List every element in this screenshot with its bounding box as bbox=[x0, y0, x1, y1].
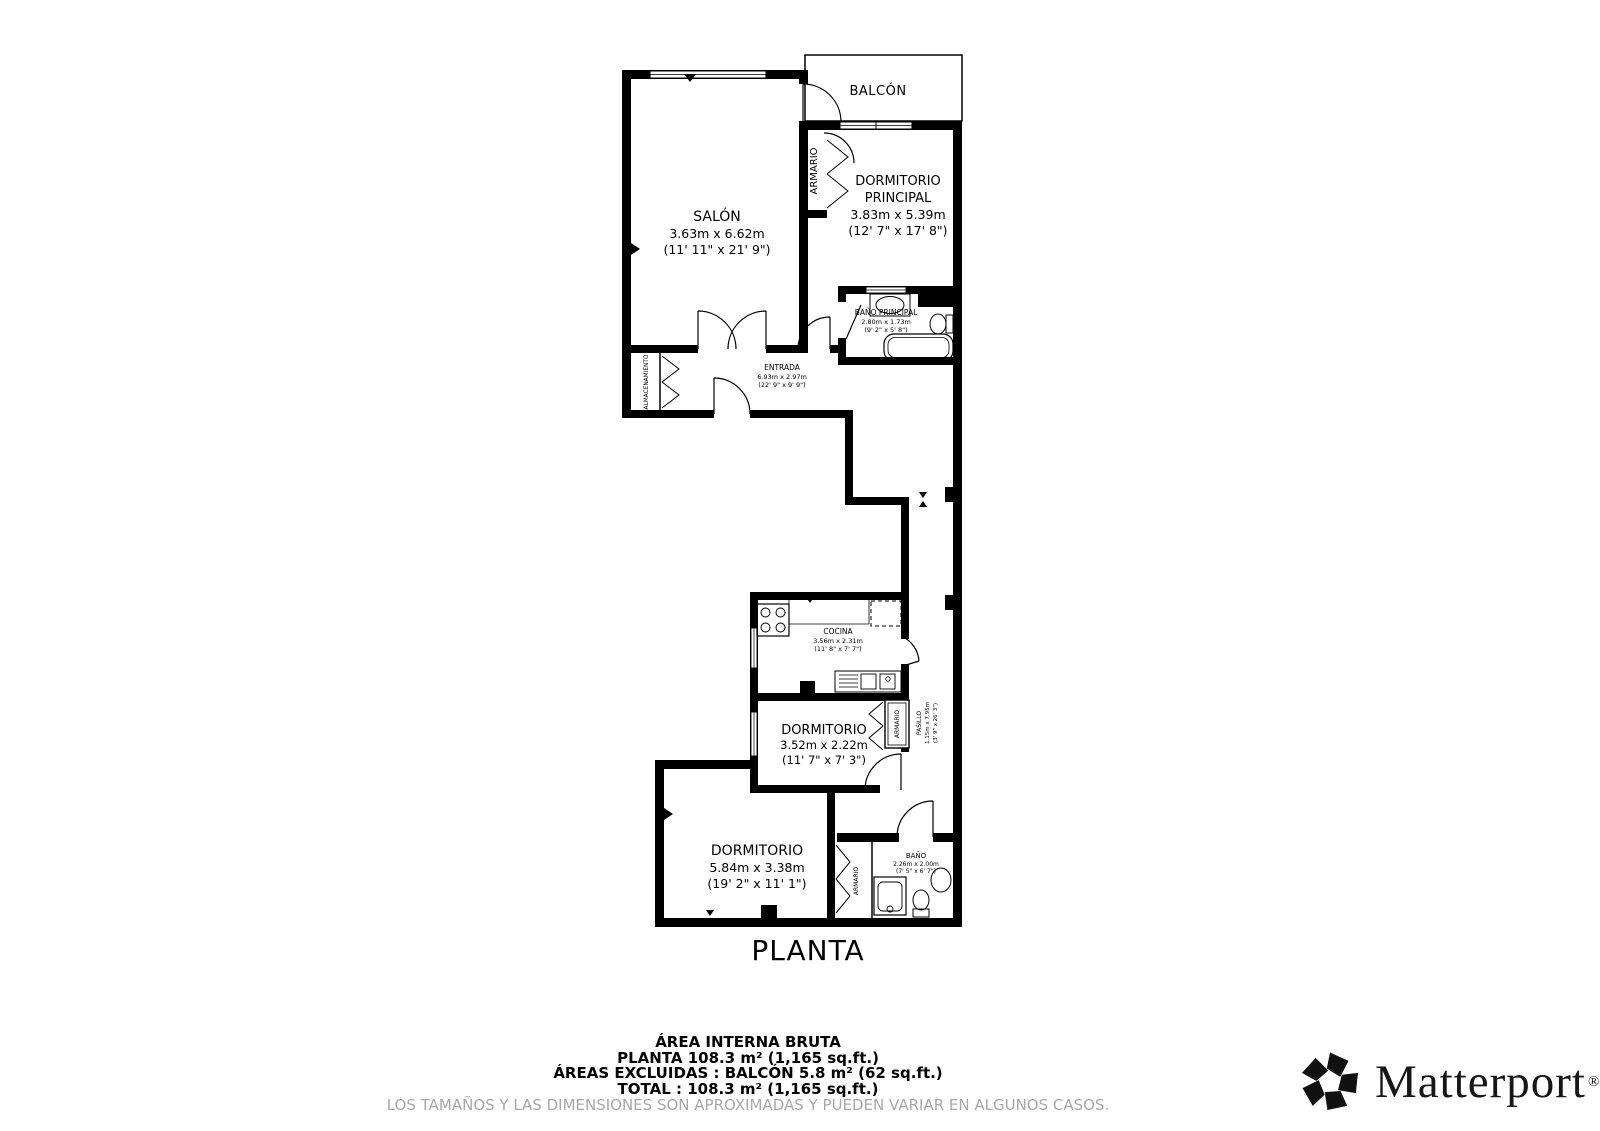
label-bano-dims-ft: (7' 5" x 6' 7") bbox=[896, 868, 936, 875]
label-bano: BAÑO bbox=[906, 851, 927, 860]
label-armario-inferior: ARMARIO bbox=[853, 867, 860, 895]
cocina-door bbox=[903, 637, 919, 666]
stove-fixture bbox=[757, 604, 789, 636]
floorplan-page: BALCÓN SALÓN 3.63m x 6.62m (11' 11" x 21… bbox=[0, 0, 1600, 1131]
armario-medio-bifold bbox=[869, 702, 883, 750]
label-dormitorio-principal-1: DORMITORIO bbox=[855, 174, 941, 189]
summary-disclaimer: LOS TAMAÑOS Y LAS DIMENSIONES SON APROXI… bbox=[348, 1098, 1148, 1114]
label-bano-principal-dims-ft: (9' 2" x 5' 8") bbox=[864, 326, 907, 334]
label-almacenamiento: ALMACENAMIENTO bbox=[644, 354, 650, 409]
label-entrada-dims-m: 6.93m x 2.97m bbox=[757, 373, 807, 381]
label-cocina-dims-ft: (11' 8" x 7' 7") bbox=[814, 645, 861, 653]
entry-door bbox=[714, 378, 750, 414]
label-dormitorio-principal-dims-m: 3.83m x 5.39m bbox=[850, 207, 945, 222]
matterport-logo: Matterport® bbox=[1298, 1050, 1599, 1114]
label-dormitorio-medio-dims-ft: (11' 7" x 7' 3") bbox=[782, 753, 866, 767]
label-dormitorio-principal-2: PRINCIPAL bbox=[865, 191, 932, 206]
label-salon-dims-ft: (11' 11" x 21' 9") bbox=[663, 242, 770, 257]
fridge-fixture bbox=[871, 601, 901, 626]
label-pasillo-group: PASILLO 1.15m x 7.95m (3' 9" x 26' 3") bbox=[916, 702, 939, 744]
plan-title: PLANTA bbox=[751, 934, 864, 967]
label-cocina-dims-m: 3.56m x 2.31m bbox=[813, 637, 863, 645]
balcony-door-arc bbox=[803, 84, 841, 122]
label-salon-dims-m: 3.63m x 6.62m bbox=[669, 226, 764, 241]
label-entrada: ENTRADA bbox=[764, 363, 801, 372]
label-armario-superior: ARMARIO bbox=[809, 147, 820, 194]
matterport-logo-icon bbox=[1298, 1050, 1362, 1114]
label-dormitorio-inferior: DORMITORIO bbox=[711, 843, 803, 859]
area-summary: ÁREA INTERNA BRUTA PLANTA 108.3 m² (1,16… bbox=[348, 1035, 1148, 1114]
label-dormitorio-medio-dims-m: 3.52m x 2.22m bbox=[780, 738, 868, 752]
bathtub-fixture bbox=[884, 334, 953, 361]
label-cocina: COCINA bbox=[823, 627, 853, 636]
matterport-wordmark: Matterport bbox=[1375, 1050, 1586, 1114]
label-pasillo-dims-m: 1.15m x 7.95m bbox=[925, 702, 931, 744]
label-bano-principal-dims-m: 2.80m x 1.73m bbox=[861, 318, 911, 326]
summary-total: TOTAL : 108.3 m² (1,165 sq.ft.) bbox=[348, 1082, 1148, 1098]
armario-superior-bifold bbox=[827, 140, 848, 208]
label-entrada-dims-ft: (22' 9" x 9' 9") bbox=[758, 381, 805, 389]
label-armario-medio: ARMARIO bbox=[894, 710, 901, 738]
armario-superior-door-arc bbox=[824, 133, 854, 163]
bano-toilet-fixture bbox=[913, 890, 929, 917]
label-salon: SALÓN bbox=[693, 207, 741, 225]
label-bano-dims-m: 2.26m x 2.00m bbox=[893, 861, 939, 868]
registered-mark-icon: ® bbox=[1588, 1074, 1599, 1091]
salon-double-door-right bbox=[728, 311, 766, 349]
almacenamiento-bifold bbox=[662, 356, 679, 408]
label-dormitorio-principal-dims-ft: (12' 7" x 17' 8") bbox=[848, 223, 947, 238]
bano-principal-toilet-fixture bbox=[930, 314, 953, 334]
label-pasillo: PASILLO bbox=[916, 711, 923, 735]
label-dormitorio-inferior-dims-m: 5.84m x 3.38m bbox=[709, 860, 804, 875]
shower-fixture bbox=[874, 877, 906, 915]
salon-double-door-left bbox=[698, 311, 736, 349]
label-dormitorio-medio: DORMITORIO bbox=[781, 723, 867, 738]
armario-inferior-bifold bbox=[836, 845, 850, 913]
label-balcon: BALCÓN bbox=[849, 83, 906, 99]
label-bano-principal: BAÑO PRINCIPAL bbox=[855, 308, 918, 317]
label-dormitorio-inferior-dims-ft: (19' 2" x 11' 1") bbox=[707, 876, 806, 891]
dormitorio-medio-door bbox=[865, 754, 901, 790]
label-pasillo-dims-ft: (3' 9" x 26' 3") bbox=[933, 703, 939, 743]
floor-plan-drawing: BALCÓN SALÓN 3.63m x 6.62m (11' 11" x 21… bbox=[0, 0, 1600, 1131]
kitchen-sink-fixture bbox=[835, 671, 901, 692]
bano-door bbox=[897, 801, 933, 837]
